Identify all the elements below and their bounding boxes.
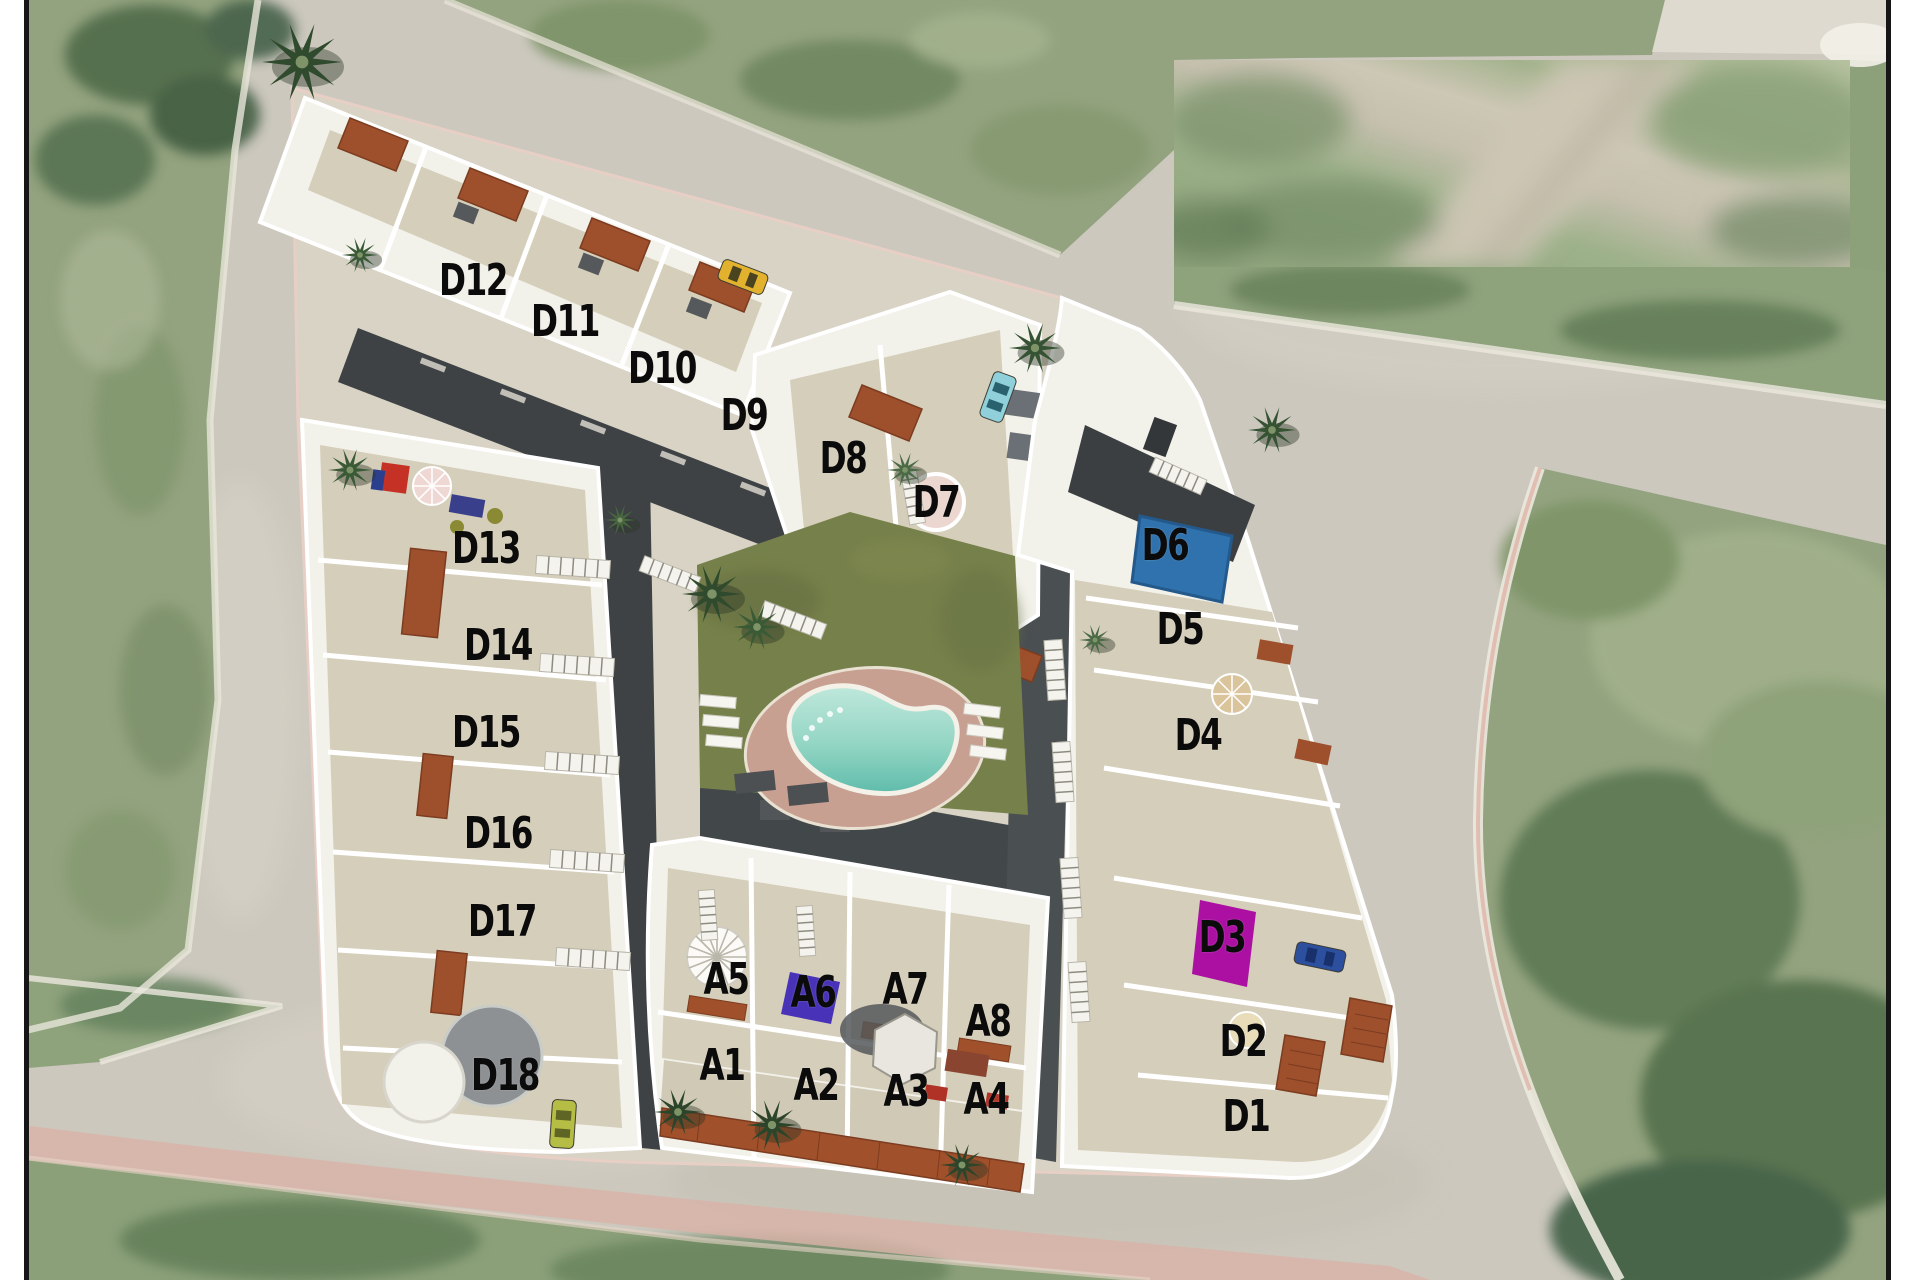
unit-label-d17: D17: [468, 900, 536, 944]
frame-border-left: [24, 0, 29, 1280]
unit-label-d12: D12: [439, 259, 507, 303]
unit-label-a1: A1: [700, 1044, 745, 1088]
unit-label-d11: D11: [531, 300, 599, 344]
unit-label-d18: D18: [471, 1054, 539, 1098]
unit-label-d5: D5: [1157, 608, 1204, 652]
unit-label-d3: D3: [1199, 916, 1246, 960]
unit-label-a5: A5: [704, 958, 749, 1002]
unit-label-d13: D13: [452, 527, 520, 571]
unit-label-d15: D15: [452, 711, 520, 755]
unit-label-d10: D10: [628, 347, 696, 391]
unit-labels-layer: D12D11D10D9D8D7D13D14D15D16D17D18A5A6A7A…: [0, 0, 1920, 1280]
unit-label-a3: A3: [884, 1070, 929, 1114]
unit-label-a6: A6: [791, 971, 836, 1015]
unit-label-d8: D8: [820, 437, 867, 481]
unit-label-d1: D1: [1223, 1095, 1270, 1139]
unit-label-d2: D2: [1220, 1020, 1267, 1064]
unit-label-d7: D7: [913, 481, 960, 525]
unit-label-d9: D9: [721, 394, 768, 438]
frame-margin-right: [1891, 0, 1920, 1280]
unit-label-a4: A4: [964, 1078, 1009, 1122]
unit-label-a8: A8: [966, 1000, 1011, 1044]
unit-label-a7: A7: [883, 968, 928, 1012]
unit-label-d16: D16: [464, 812, 532, 856]
aerial-site-plan: D12D11D10D9D8D7D13D14D15D16D17D18A5A6A7A…: [0, 0, 1920, 1280]
unit-label-d14: D14: [464, 624, 532, 668]
unit-label-a2: A2: [794, 1064, 839, 1108]
unit-label-d4: D4: [1175, 714, 1222, 758]
frame-margin-left: [0, 0, 24, 1280]
unit-label-d6: D6: [1142, 524, 1189, 568]
